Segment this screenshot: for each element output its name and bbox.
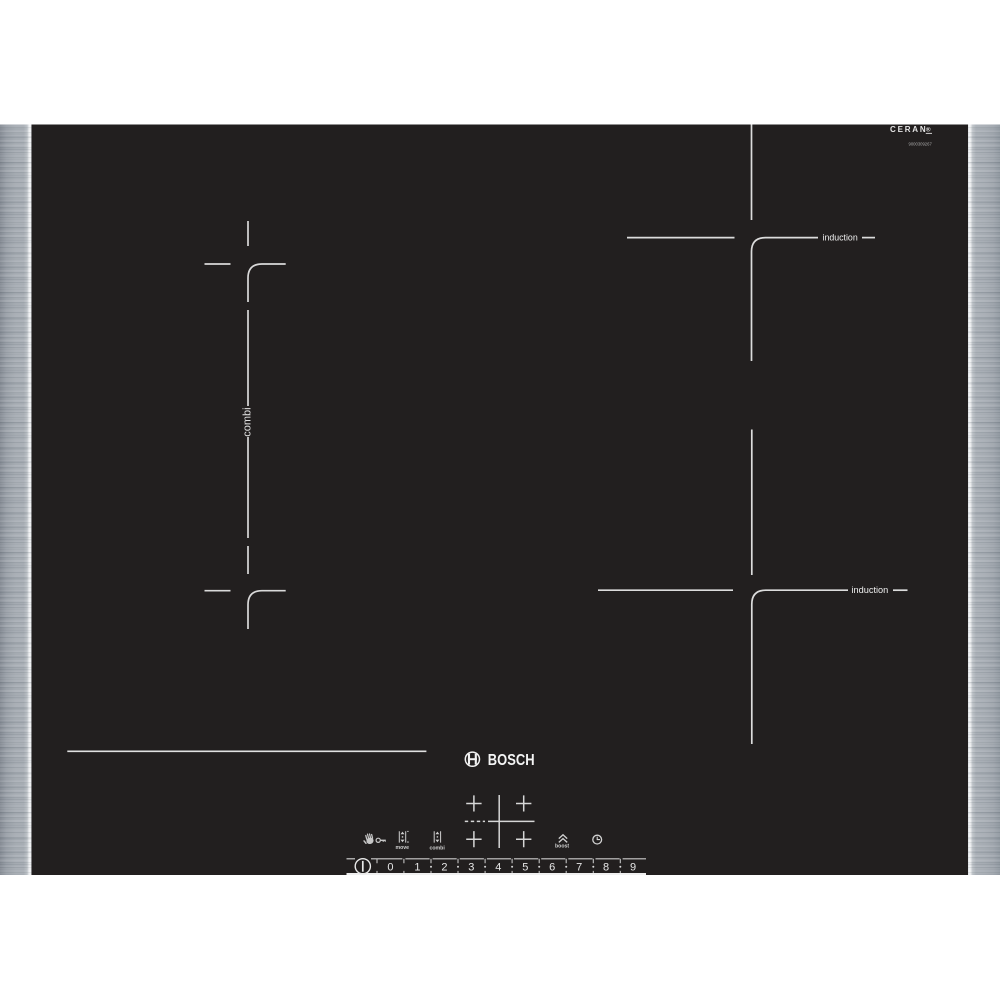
svg-text:4: 4 <box>495 862 501 874</box>
svg-text:3: 3 <box>468 862 474 874</box>
svg-text:boost: boost <box>555 844 569 850</box>
svg-text:7: 7 <box>576 862 582 874</box>
svg-text:CERAN: CERAN <box>890 125 927 134</box>
svg-text:8: 8 <box>603 862 609 874</box>
svg-text:induction: induction <box>823 233 858 243</box>
svg-text:move: move <box>396 845 410 851</box>
svg-text:9: 9 <box>630 862 636 874</box>
svg-text:BOSCH: BOSCH <box>488 752 535 769</box>
svg-text:®: ® <box>926 127 931 134</box>
svg-text:2: 2 <box>441 862 447 874</box>
svg-text:combi: combi <box>430 846 446 852</box>
svg-text:1: 1 <box>414 862 420 874</box>
svg-text:6: 6 <box>549 862 555 874</box>
svg-text:combi: combi <box>242 407 254 436</box>
svg-text:induction: induction <box>852 585 889 595</box>
svg-text:5: 5 <box>522 862 528 874</box>
svg-text:0: 0 <box>387 862 393 874</box>
svg-text:9000309267: 9000309267 <box>909 141 933 146</box>
